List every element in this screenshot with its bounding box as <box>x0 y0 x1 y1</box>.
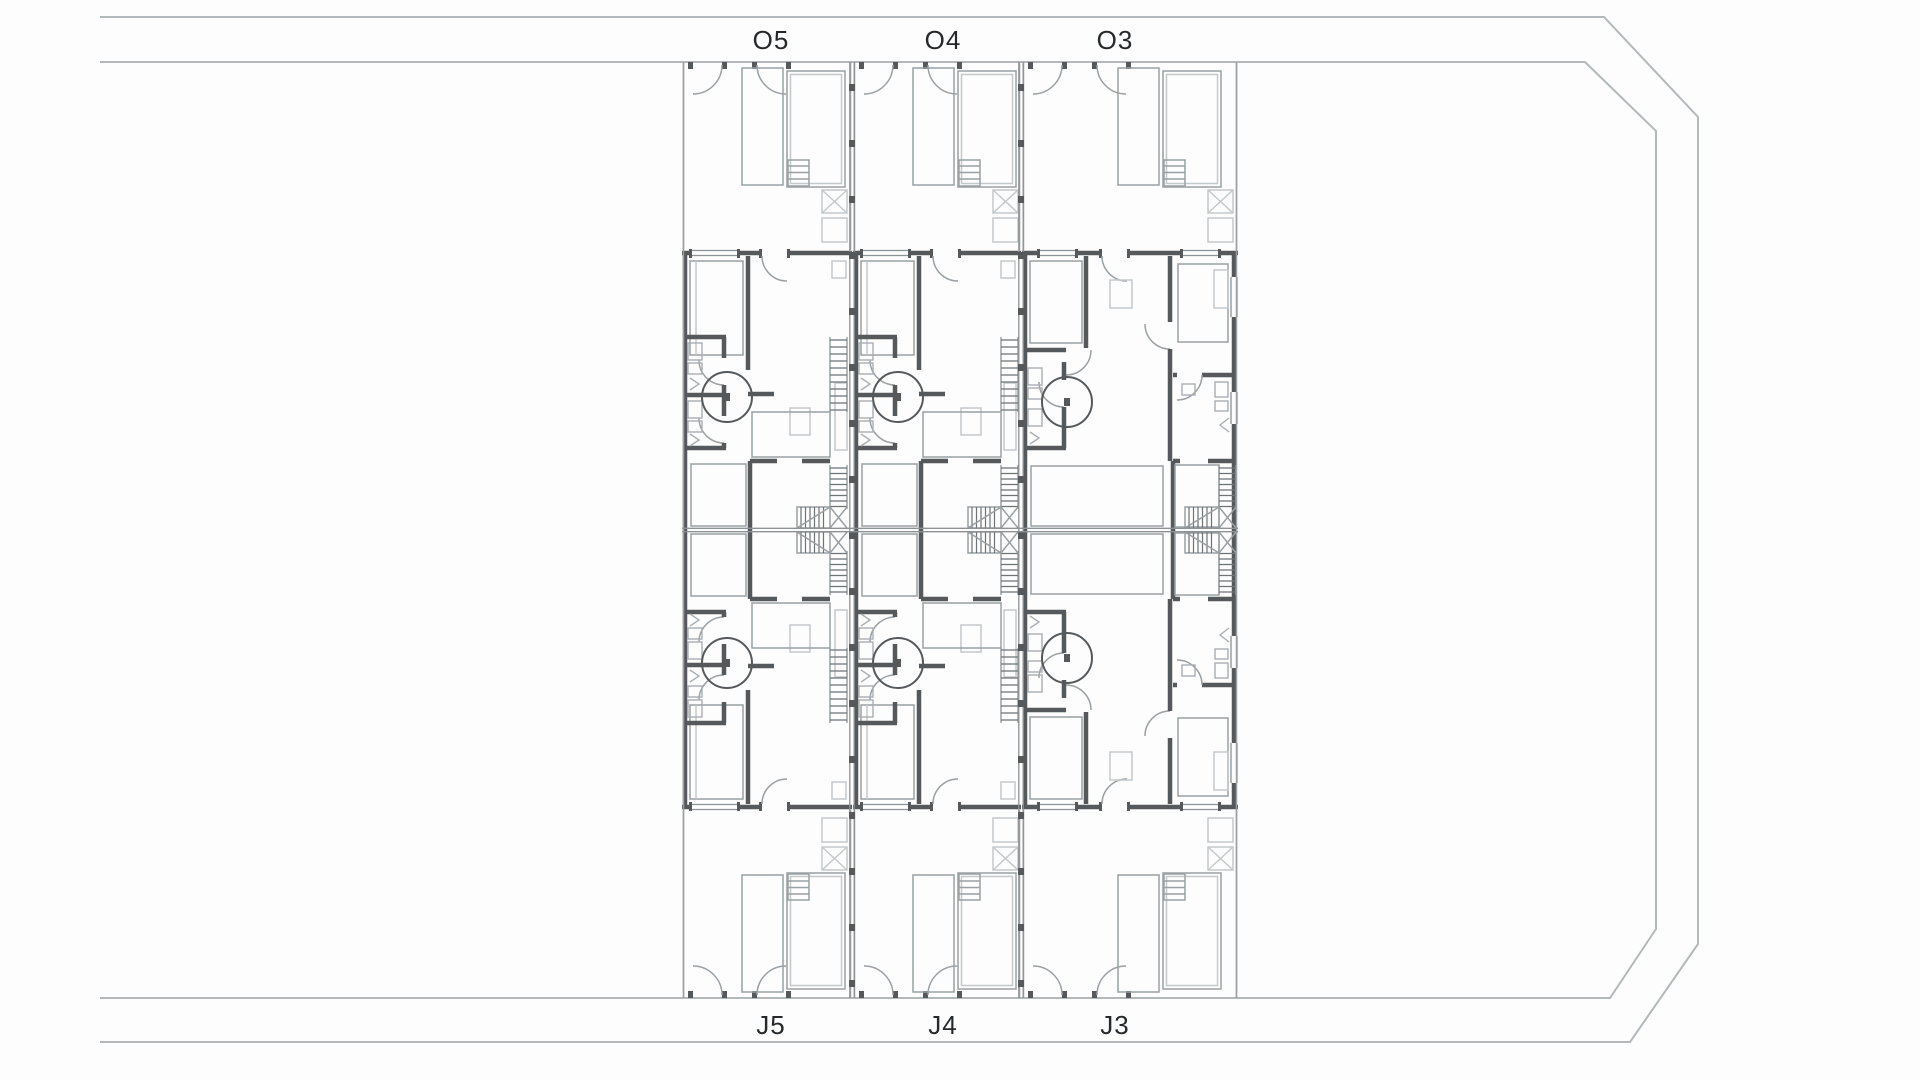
unit-O4-floorplan <box>853 62 1021 530</box>
unit-label-bottom-1: J5 <box>756 1010 785 1040</box>
site-boundary-inner-line <box>100 62 1656 998</box>
site-floor-plan: O5 O4 O3 J5 J4 J3 <box>0 0 1920 1080</box>
unit-J4-floorplan <box>853 530 1021 998</box>
unit-J5-floorplan <box>682 530 852 998</box>
site-boundary-outer-line <box>100 17 1698 1042</box>
housing-block-plan <box>682 62 1240 998</box>
unit-label-bottom-2: J4 <box>928 1010 957 1040</box>
unit-J3-floorplan <box>1022 530 1240 998</box>
unit-label-top-3: O3 <box>1097 25 1134 55</box>
unit-O3-floorplan <box>1022 62 1240 530</box>
unit-label-bottom-3: J3 <box>1100 1010 1129 1040</box>
unit-label-top-2: O4 <box>925 25 962 55</box>
site-boundary <box>100 17 1698 1042</box>
site-plan-page: O5 O4 O3 J5 J4 J3 <box>0 0 1920 1080</box>
unit-O5-floorplan <box>682 62 852 530</box>
unit-label-top-1: O5 <box>753 25 790 55</box>
